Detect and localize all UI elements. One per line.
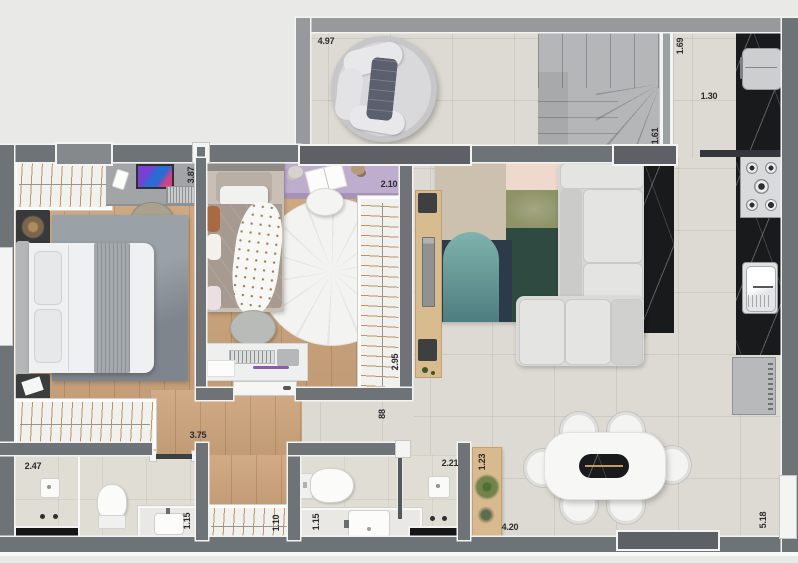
shower2-head (428, 476, 450, 498)
toilet2 (299, 468, 353, 502)
wardrobe1-rail (20, 424, 151, 425)
tv-console-speaker-bottom (418, 339, 437, 361)
bedroom2-pouf-chair (306, 188, 344, 216)
nightstand (16, 374, 50, 400)
console-plant-dots (422, 367, 428, 373)
console-plant-small (477, 506, 495, 524)
hallway-wood-floor-lower (206, 455, 288, 507)
dim-linen-closet: 1.10 (271, 515, 281, 532)
dim-kitchen-corridor: 1.30 (701, 91, 718, 101)
bathroom2-left-wall (288, 443, 300, 540)
dim-vanity1: 1.15 (182, 513, 192, 530)
burner-2 (765, 162, 777, 174)
toilet1 (96, 484, 126, 528)
vanity2-tap (344, 520, 349, 528)
dim-stair-width: 1.61 (650, 128, 660, 145)
vanity2-sink (348, 510, 390, 538)
bathroom2-door-jamb (396, 441, 410, 457)
shower2-head-dot (436, 484, 440, 488)
dim-bedroom2-wardrobe: 2.95 (390, 354, 400, 371)
bed1-duvet-fold (68, 245, 69, 371)
dim-vanity2: 1.15 (311, 514, 321, 531)
stair-wall-core (663, 29, 670, 159)
single-bed (206, 160, 284, 312)
smartphone (111, 168, 129, 190)
shower1-glass (78, 457, 80, 537)
refrigerator (742, 48, 782, 90)
round-daybed (331, 36, 437, 142)
dim-bathroom1: 2.47 (25, 461, 42, 471)
balcony-sliding-door (298, 144, 472, 166)
fridge-handles (740, 57, 743, 79)
chaise-seat-1 (519, 299, 565, 365)
mousepad (277, 349, 299, 366)
burner-3 (746, 199, 758, 211)
toilet2-button (303, 482, 307, 488)
black-marble-island (644, 158, 674, 333)
double-bed (16, 243, 154, 373)
rug-teal-arch (443, 232, 499, 322)
bed2-side-pillow-pink (206, 286, 221, 310)
bed1-headboard (16, 241, 30, 375)
outer-white-band (0, 552, 798, 556)
chaise-armrest (611, 299, 643, 365)
corner-sofa-chaise (516, 296, 644, 366)
desk-white-box (207, 360, 235, 377)
dim-console: 1.23 (477, 454, 487, 471)
stair-hall-sliding-door (612, 144, 678, 166)
vanity1-tap (166, 508, 170, 514)
rug-sage-patch (506, 190, 563, 228)
fridge-divider (745, 67, 777, 68)
washer-door-edge (768, 360, 773, 410)
dim-shower2: 2.21 (442, 458, 459, 468)
kitchen-beam (700, 150, 782, 157)
balcony-top-wall (296, 18, 798, 32)
bathroom2-top-wall (288, 443, 398, 455)
towel-rail (156, 454, 192, 459)
bathroom2-right-wall (458, 443, 470, 540)
plant-side-table (16, 210, 50, 244)
dried-plant (21, 215, 45, 239)
bed1-pillow-1 (34, 251, 62, 305)
dim-hallway: 88 (377, 409, 387, 419)
bed1-pillow-2 (34, 309, 62, 363)
winder-staircase (538, 28, 660, 150)
shower1-knobs (40, 514, 45, 519)
dim-dining-length: 5.18 (758, 512, 768, 529)
book-spine (323, 168, 329, 190)
bed1-gray-throw (94, 243, 130, 373)
bathroom1-top-wall (0, 443, 152, 455)
door-handle (283, 386, 291, 390)
bed2-side-pillow-white (207, 234, 221, 260)
sink-drain-grid (748, 295, 772, 307)
plush-toy-1 (288, 166, 303, 178)
bathroom1-door-bar (150, 451, 198, 461)
kitchen-sink (742, 262, 778, 314)
nightstand-book (21, 376, 43, 395)
entry-door (780, 476, 796, 538)
toilet1-tank (98, 515, 126, 529)
vanity2-drain (367, 527, 371, 531)
console-plant-large (474, 474, 500, 500)
balcony-left-wall (296, 18, 310, 150)
sofa-armrest-top (560, 163, 644, 189)
shower1-head (40, 478, 60, 498)
wardrobe-rail (382, 203, 383, 387)
closet-rail (19, 184, 107, 185)
dining-window (616, 530, 720, 551)
bedroom2-bottom-wall-right (296, 388, 412, 400)
vanity1-sink (154, 513, 184, 535)
bedroom1-window (55, 142, 113, 166)
gas-cooktop (740, 156, 784, 218)
shower1-head-dot (47, 485, 51, 489)
rug-beige-patch (435, 158, 512, 240)
dim-balcony: 4.97 (318, 36, 335, 46)
tv-console (415, 190, 442, 378)
bedroom1-bedroom2-wall (196, 158, 206, 392)
washing-machine (732, 357, 776, 415)
sofa-seat-1 (583, 189, 643, 263)
burner-1 (746, 162, 758, 174)
pen-tray (253, 366, 289, 369)
table-centerpiece-tray (579, 454, 629, 478)
dim-bedroom1-length: 3.75 (190, 430, 207, 440)
bedroom2-desk-chair (230, 310, 276, 346)
dim-dining-width: 4.20 (502, 522, 519, 532)
keyboard (229, 350, 275, 364)
bedroom2-door-leaf (233, 381, 297, 396)
sink-faucet (753, 286, 773, 288)
dim-bedroom1-width: 3.87 (186, 167, 196, 184)
top-wall-bedrooms (0, 145, 300, 162)
tv-console-speaker-top (418, 193, 437, 213)
bed2-side-pillow-rust (206, 206, 220, 232)
tv-screen (422, 237, 435, 307)
right-outer-wall (782, 18, 798, 552)
floor-plan-canvas: 4.97 1.69 1.30 1.61 3.87 2.10 2.95 3.75 … (0, 0, 798, 563)
shower2-glass-door (398, 457, 402, 519)
stair-hall-wall (467, 146, 615, 162)
laptop (166, 186, 196, 204)
dim-bedroom2-desk: 2.10 (381, 179, 398, 189)
dim-stair-depth: 1.69 (675, 38, 685, 55)
stair-wall-vertical (660, 26, 673, 162)
centerpiece-stick (585, 465, 623, 467)
bedroom2-desk (204, 343, 308, 381)
bedroom1-desk (106, 158, 196, 206)
burner-center (754, 179, 769, 194)
chaise-seat-2 (565, 299, 611, 365)
dining-table (544, 432, 666, 500)
left-wall-window (0, 248, 12, 345)
burner-4 (765, 199, 777, 211)
bathroom1-right-wall (196, 443, 208, 540)
bedroom2-bottom-wall-left (196, 388, 233, 400)
shower2-knobs (430, 516, 435, 521)
stair-landing-shade (538, 72, 568, 150)
toilet2-bowl (310, 468, 354, 503)
bedroom1-wardrobe (14, 399, 156, 449)
bedroom2-living-wall (400, 158, 412, 392)
